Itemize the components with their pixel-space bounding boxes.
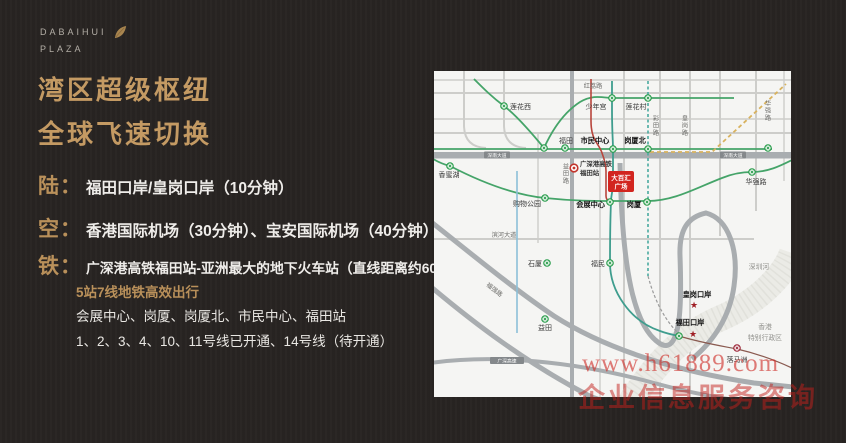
land-text: 福田口岸/皇岗口岸（10分钟）	[86, 176, 294, 198]
headline-line2: 全球飞速切换	[38, 114, 212, 151]
station-yitian: 益田	[538, 323, 552, 332]
checkpoint-huanggang: 皇岗口岸	[683, 290, 712, 299]
geo-hongkong-line1: 香港	[758, 322, 772, 331]
rail-highlight: 5站7线地铁高效出行	[76, 281, 199, 301]
road-label-huaqiang: 华强路	[764, 99, 771, 121]
location-map: 深南大道 深南大道 广深高速 大百汇 广场 ★ ★	[434, 71, 791, 397]
station-gangxia: 岗厦	[627, 200, 642, 209]
station-fumin: 福民	[591, 259, 605, 268]
station-xiangmihu: 香蜜湖	[439, 170, 460, 179]
road-label-caitian: 彩田路	[652, 114, 659, 136]
road-label-yitian: 益田路	[562, 162, 569, 184]
road-label-shennan-east: 深南大道	[723, 152, 742, 159]
headline-line1: 湾区超级枢纽	[38, 70, 212, 107]
rail-text: 广深港高铁福田站-亚洲最大的地下火车站（直线距离约600米）	[86, 257, 472, 277]
road-label-huanggang: 皇岗路	[681, 114, 688, 136]
rail-stations: 会展中心、岗厦、岗厦北、市民中心、福田站	[76, 305, 346, 325]
station-shixia: 石厦	[528, 260, 542, 268]
futian-star-icon: ★	[689, 329, 697, 339]
station-shiminzhongxin: 市民中心	[581, 136, 611, 145]
huanggang-star-icon: ★	[690, 300, 698, 310]
land-label: 陆：	[38, 170, 82, 200]
station-lianhuaxi: 莲花西	[510, 102, 531, 111]
brand-name: DABAIHUI	[40, 28, 107, 37]
watermark-url: www.h61889.com	[582, 350, 779, 378]
road-label-expressway: 广深高速	[497, 357, 516, 364]
air-text: 香港国际机场（30分钟）、宝安国际机场（40分钟）	[86, 219, 438, 241]
station-shaoniangong: 少年宫	[586, 102, 607, 111]
station-futian: 福田	[559, 136, 573, 145]
geo-hongkong-line2: 特别行政区	[748, 333, 782, 342]
geo-shenzhenhe: 深圳河	[749, 262, 770, 271]
row-air: 空： 香港国际机场（30分钟）、宝安国际机场（40分钟）	[38, 213, 438, 243]
rail-lines: 1、2、3、4、10、11号线已开通、14号线（待开通）	[76, 330, 393, 350]
plaza-name-line2: 广场	[615, 182, 629, 191]
brand-logo: DABAIHUI PLAZA	[40, 25, 128, 54]
station-gangxiabei: 岗厦北	[624, 136, 646, 145]
air-label: 空：	[38, 213, 82, 243]
station-huaqianglu: 华强路	[746, 177, 767, 186]
station-lianhuacun: 莲花村	[626, 102, 647, 111]
rail-label: 铁：	[38, 250, 82, 280]
plaza-name-line1: 大百汇	[611, 173, 631, 182]
watermark-caption: 企业信息服务咨询	[578, 376, 818, 415]
hsr-label-line1: 广深港高铁	[580, 159, 613, 168]
gold-leaf-icon	[113, 25, 128, 40]
row-land: 陆： 福田口岸/皇岗口岸（10分钟）	[38, 170, 294, 200]
checkpoint-futian: 福田口岸	[675, 318, 705, 327]
road-label-shennan-west: 深南大道	[487, 152, 506, 159]
hsr-station-icon	[570, 164, 578, 172]
station-huizhanzhongxin: 会展中心	[576, 200, 606, 209]
plaza-marker: 大百汇 广场	[608, 171, 634, 192]
road-label-binhe: 滨河大道	[492, 231, 517, 239]
road-label-hongli: 红荔路	[584, 82, 603, 90]
row-rail: 铁： 广深港高铁福田站-亚洲最大的地下火车站（直线距离约600米）	[38, 250, 472, 280]
station-gouwugongyuan: 购物公园	[513, 199, 541, 208]
brand-sub: PLAZA	[40, 45, 128, 54]
brochure-slide: DABAIHUI PLAZA 湾区超级枢纽 全球飞速切换 陆： 福田口岸/皇岗口…	[0, 0, 846, 443]
hsr-label-line2: 福田站	[579, 168, 600, 177]
